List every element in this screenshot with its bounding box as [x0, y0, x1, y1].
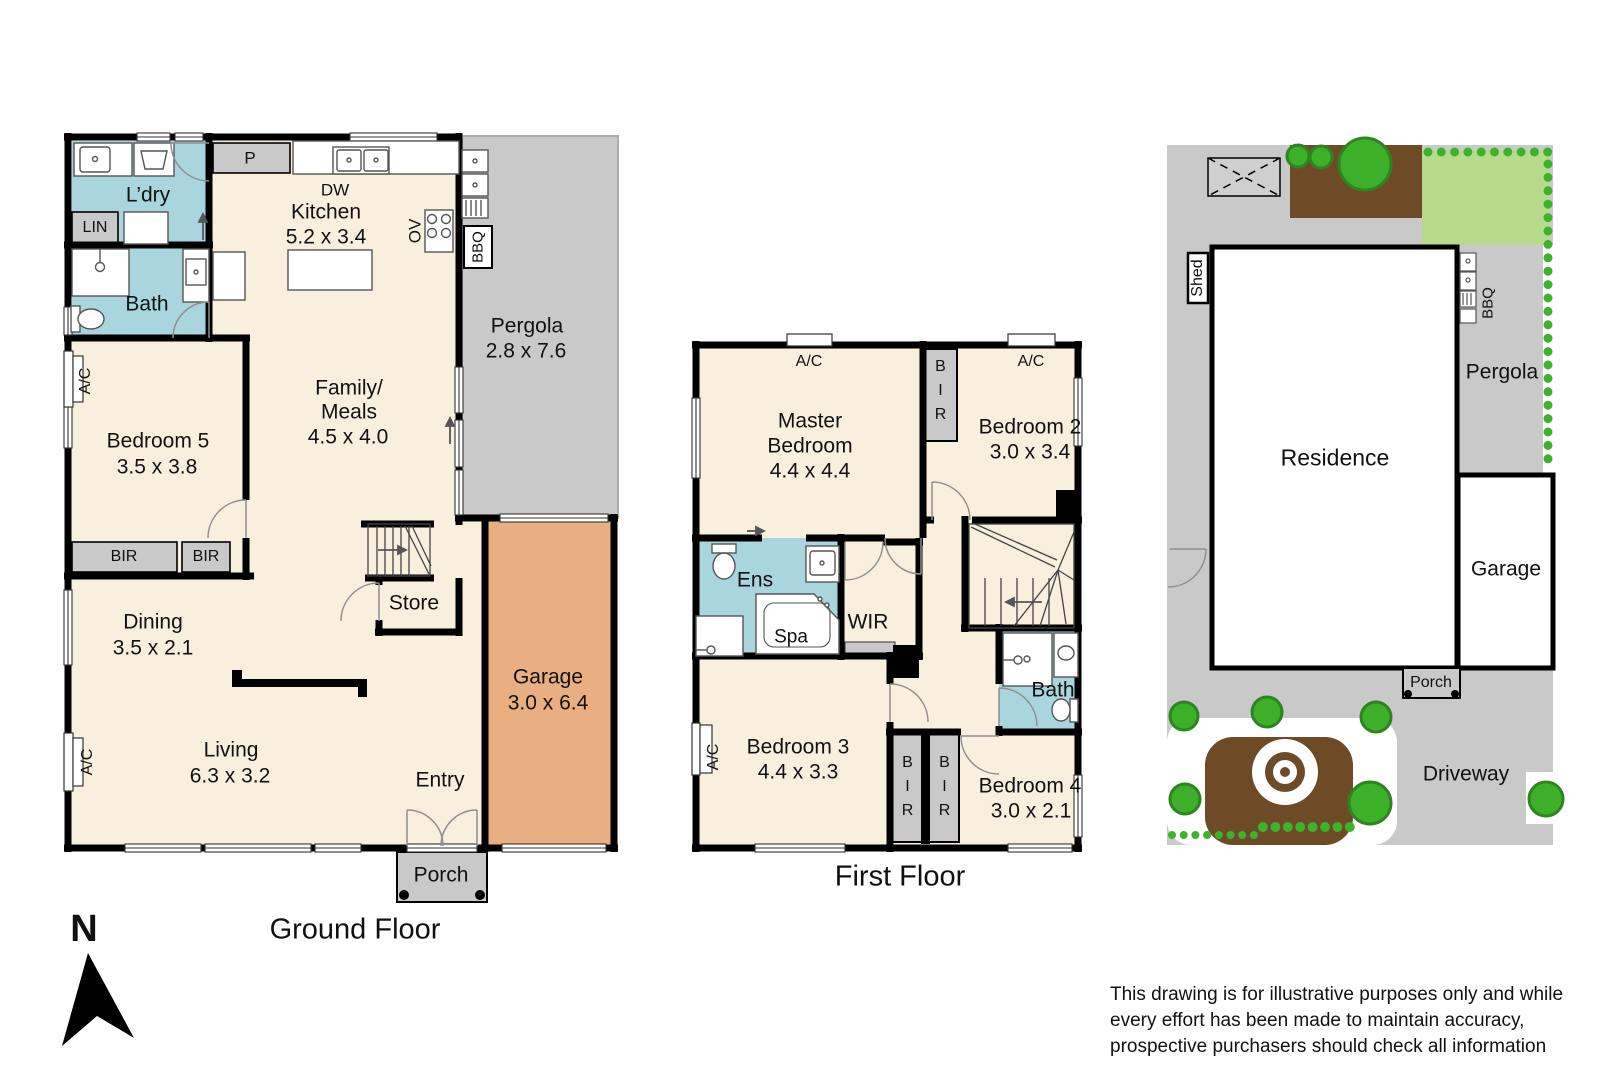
- ff-bedroom4-dims: 3.0 x 2.1: [991, 801, 1072, 822]
- gf-ac-living-label: A/C: [80, 749, 96, 776]
- gf-bir1-label: BIR: [111, 549, 138, 565]
- ground-floor-title: Ground Floor: [270, 916, 441, 945]
- site-shed-label: Shed: [1190, 259, 1206, 296]
- gf-pergola-label: Pergola: [491, 316, 563, 337]
- ff-ac-bed3-label: A/C: [706, 744, 722, 771]
- ff-bir-right-label: BIR: [936, 754, 952, 826]
- site-pergola-label: Pergola: [1466, 362, 1538, 383]
- first-floor-title: First Floor: [835, 863, 966, 892]
- gf-dining-dims: 3.5 x 2.1: [113, 638, 194, 659]
- ensuite-toilet-icon: [712, 544, 736, 579]
- gf-bedroom5-label: Bedroom 5: [107, 431, 210, 452]
- site-garage-label: Garage: [1471, 559, 1541, 580]
- gf-living-dims: 6.3 x 3.2: [190, 766, 271, 787]
- gf-entry-label: Entry: [415, 770, 464, 791]
- ff-bedroom3-dims: 4.4 x 3.3: [758, 762, 839, 783]
- floorplan-graphics: [0, 0, 1620, 1080]
- ff-spa-label: Spa: [774, 628, 808, 647]
- gf-bbq-label: BBQ: [471, 231, 486, 263]
- ensuite-vanity-icon: [806, 546, 839, 582]
- site-residence-label: Residence: [1281, 447, 1390, 470]
- bath-vanity-icon: [72, 249, 129, 296]
- site-driveway-label: Driveway: [1423, 764, 1509, 785]
- laundry-bench: [124, 212, 168, 244]
- ensuite-shower-icon: [696, 616, 743, 656]
- gf-laundry-label: L’dry: [126, 185, 170, 206]
- gf-family-label2: Meals: [321, 402, 377, 423]
- ff-bedroom2-dims: 3.0 x 3.4: [990, 442, 1071, 463]
- kitchen-cabinet: [213, 252, 245, 300]
- ff-bir-left-label: BIR: [899, 754, 915, 826]
- ff-ensuite-label: Ens: [737, 570, 773, 591]
- gf-bedroom5-dims: 3.5 x 3.8: [117, 457, 198, 478]
- gf-bir2-label: BIR: [193, 549, 220, 565]
- disclaimer-text: This drawing is for illustrative purpose…: [1110, 982, 1563, 1060]
- gf-linen-label: LIN: [83, 220, 108, 236]
- gf-dining-label: Dining: [123, 612, 183, 633]
- ff-master-dims: 4.4 x 4.4: [770, 461, 851, 482]
- clothesline-icon: [1208, 158, 1280, 196]
- ff-wir-label: WIR: [848, 612, 889, 633]
- site-bbq-icon: [1460, 253, 1476, 323]
- laundry-trough-icon: [134, 143, 174, 176]
- kitchen-island: [288, 250, 372, 290]
- gf-porch-label: Porch: [414, 865, 469, 886]
- gf-pergola-dims: 2.8 x 7.6: [486, 341, 567, 362]
- gf-garage-label: Garage: [513, 667, 583, 688]
- ff-master-label2: Bedroom: [767, 436, 852, 457]
- disclaimer-line1: This drawing is for illustrative purpose…: [1110, 982, 1563, 1008]
- disclaimer-line3: prospective purchasers should check all …: [1110, 1034, 1563, 1060]
- gf-dishwasher-label: DW: [321, 182, 349, 199]
- bbq-bench-icon: [462, 150, 488, 218]
- bath-toilet-icon-ff: [1052, 699, 1078, 722]
- ff-bir-top-label: BIR: [932, 358, 948, 430]
- ff-bedroom4-label: Bedroom 4: [979, 776, 1082, 797]
- gf-bath-label: Bath: [125, 294, 168, 315]
- site-bbq-label: BBQ: [1481, 287, 1496, 319]
- bath-vanity-icon-ff: [1054, 633, 1078, 677]
- gf-kitchen-label: Kitchen: [291, 202, 361, 223]
- gf-oven-label: OV: [407, 219, 424, 244]
- kitchen-sink-icon: [333, 147, 389, 174]
- ff-bedroom2-label: Bedroom 2: [979, 417, 1082, 438]
- shower-icon: [183, 249, 209, 302]
- north-arrow-icon: [62, 953, 134, 1046]
- ff-ac-master-label: A/C: [796, 354, 823, 370]
- site-porch-label: Porch: [1410, 675, 1452, 691]
- ff-bath-label: Bath: [1031, 680, 1074, 701]
- floorplan-page: L’dry LIN Bath Bedroom 5 3.5 x 3.8 BIR B…: [0, 0, 1620, 1080]
- ff-ac-bed2-label: A/C: [1018, 354, 1045, 370]
- north-label: N: [70, 910, 97, 948]
- lawn-area: [1422, 150, 1550, 245]
- ff-bedroom3-label: Bedroom 3: [747, 737, 850, 758]
- ff-master-label1: Master: [778, 411, 842, 432]
- disclaimer-line2: every effort has been made to maintain a…: [1110, 1008, 1563, 1034]
- gf-family-dims: 4.5 x 4.0: [308, 427, 389, 448]
- garden-feature-icon: [1252, 739, 1318, 805]
- gf-family-label1: Family/: [315, 378, 383, 399]
- gf-pantry-label: P: [244, 150, 255, 167]
- site-plan: [1167, 138, 1563, 845]
- gf-store-label: Store: [389, 593, 439, 614]
- gf-kitchen-dims: 5.2 x 3.4: [286, 227, 367, 248]
- laundry-sink-icon: [74, 143, 132, 176]
- gf-ac-bed5-label: A/C: [78, 368, 94, 395]
- cooktop-icon: [425, 210, 453, 252]
- gf-garage-dims: 3.0 x 6.4: [508, 693, 589, 714]
- gf-living-label: Living: [204, 740, 259, 761]
